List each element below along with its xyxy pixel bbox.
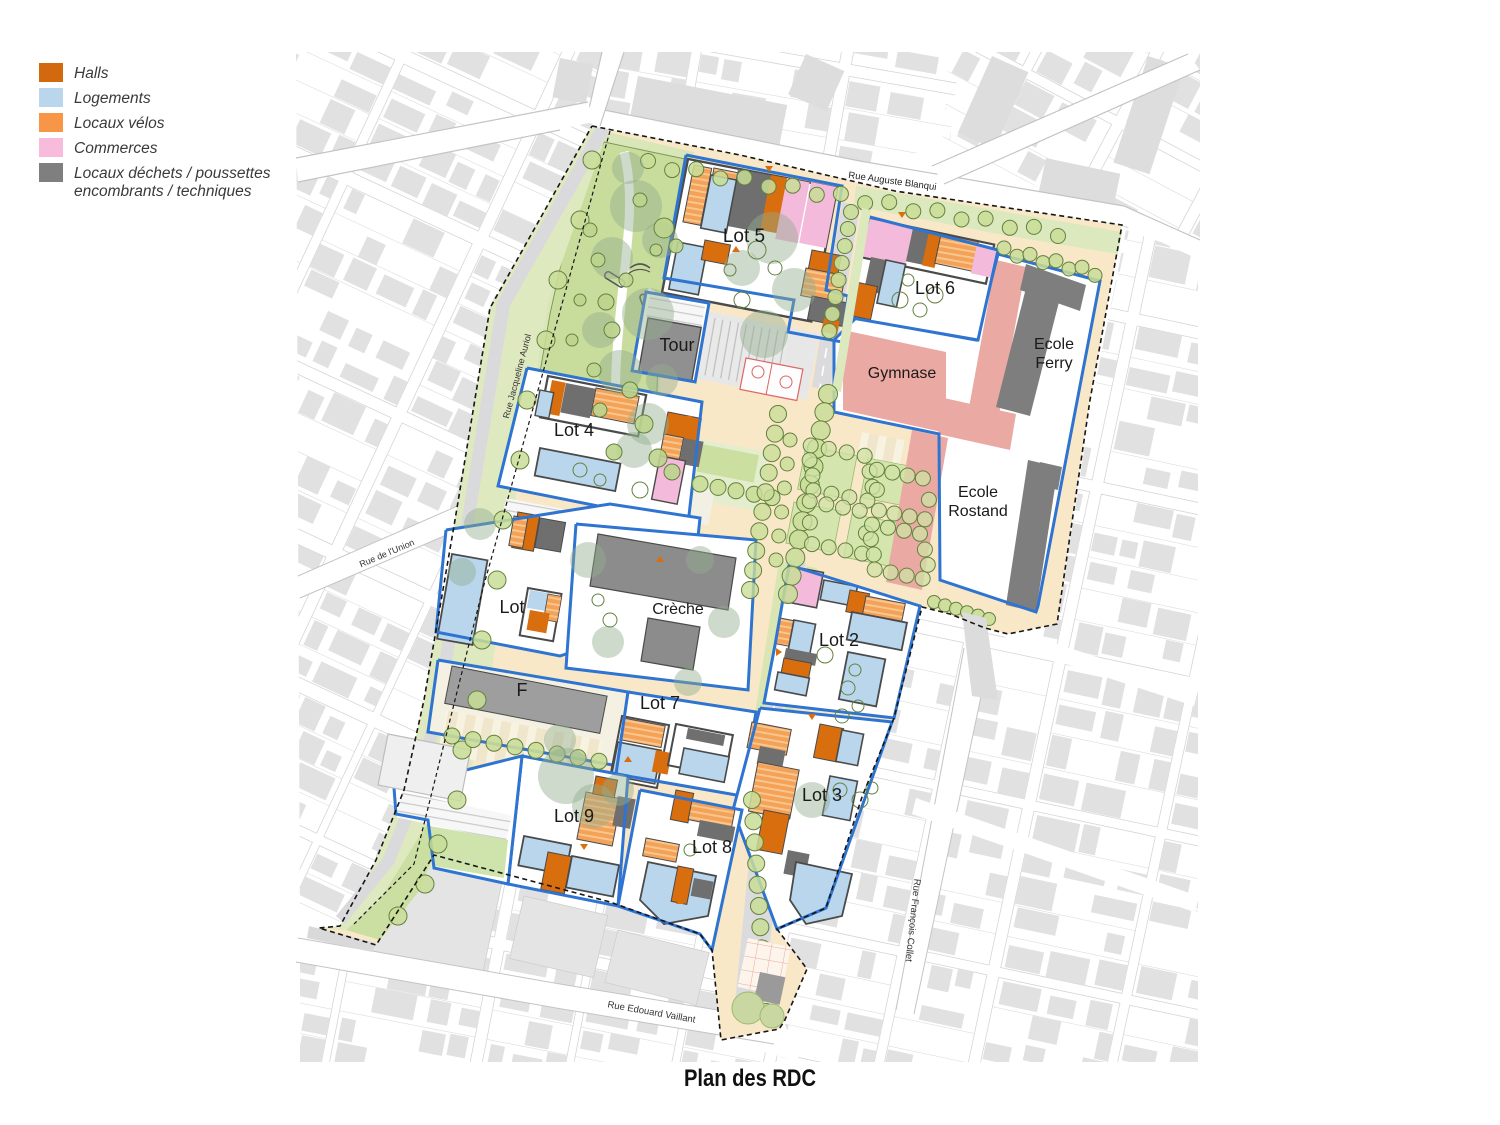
svg-text:Lot 2: Lot 2	[819, 630, 859, 650]
svg-text:Locaux vélos: Locaux vélos	[74, 115, 165, 132]
svg-text:Lot 4: Lot 4	[554, 420, 594, 440]
svg-text:Commerces: Commerces	[74, 140, 158, 157]
svg-text:Lot 8: Lot 8	[692, 837, 732, 857]
svg-text:encombrants / techniques: encombrants / techniques	[74, 183, 252, 200]
svg-text:Locaux déchets / poussettes: Locaux déchets / poussettes	[74, 165, 271, 182]
svg-text:Tour: Tour	[659, 335, 694, 355]
svg-text:Lot: Lot	[499, 597, 524, 617]
svg-text:Plan des RDC: Plan des RDC	[684, 1065, 816, 1092]
svg-text:Logements: Logements	[74, 90, 151, 107]
svg-text:F: F	[517, 680, 528, 700]
svg-text:Crèche: Crèche	[652, 601, 704, 618]
svg-text:Lot 3: Lot 3	[802, 785, 842, 805]
svg-text:Lot 9: Lot 9	[554, 806, 594, 826]
svg-text:Ecole: Ecole	[958, 484, 998, 501]
svg-text:Lot 7: Lot 7	[640, 693, 680, 713]
svg-text:Ecole: Ecole	[1034, 336, 1074, 353]
svg-text:Rostand: Rostand	[948, 503, 1008, 520]
svg-text:Lot 5: Lot 5	[723, 226, 765, 247]
svg-text:Lot 6: Lot 6	[915, 278, 955, 298]
svg-text:Ferry: Ferry	[1035, 355, 1072, 372]
svg-text:Halls: Halls	[74, 65, 109, 82]
svg-text:Gymnase: Gymnase	[868, 365, 937, 382]
